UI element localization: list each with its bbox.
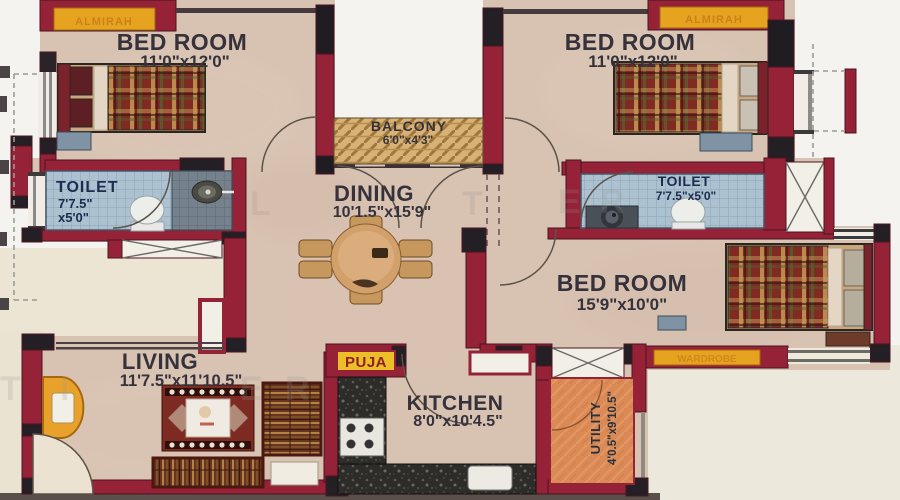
svg-text:11'0"x12'0": 11'0"x12'0" [140, 52, 229, 71]
svg-text:E: E [240, 370, 271, 408]
svg-text:11'0"x12'0": 11'0"x12'0" [588, 52, 677, 71]
svg-text:DINING: DINING [334, 181, 414, 206]
svg-text:R: R [285, 370, 318, 408]
svg-text:15'9"x10'0": 15'9"x10'0" [577, 295, 667, 314]
svg-text:TOILET: TOILET [56, 179, 119, 196]
svg-text:T: T [0, 370, 29, 408]
svg-text:PUJA: PUJA [345, 354, 387, 371]
svg-text:BALCONY: BALCONY [371, 118, 447, 134]
svg-text:7'7.5"x5'0": 7'7.5"x5'0" [656, 189, 716, 203]
svg-text:L: L [250, 185, 279, 223]
svg-text:BED ROOM: BED ROOM [557, 270, 688, 296]
svg-text:10'1.5"x15'9": 10'1.5"x15'9" [333, 204, 431, 221]
svg-text:8'0"x10'4.5": 8'0"x10'4.5" [413, 413, 503, 430]
svg-text:11'7.5"x11'10.5": 11'7.5"x11'10.5" [120, 372, 243, 390]
svg-text:R: R [600, 183, 633, 221]
svg-text:4'0.5"x9'10.5": 4'0.5"x9'10.5" [607, 391, 619, 465]
svg-text:6'0"x4'3": 6'0"x4'3" [383, 133, 433, 147]
svg-text:I: I [60, 370, 77, 408]
svg-text:ALMIRAH: ALMIRAH [75, 16, 133, 28]
svg-text:E: E [558, 183, 589, 221]
svg-text:KITCHEN: KITCHEN [407, 392, 504, 415]
svg-text:TOILET: TOILET [658, 173, 711, 189]
svg-text:WARDROBE: WARDROBE [677, 354, 737, 365]
svg-text:LIVING: LIVING [122, 349, 198, 374]
svg-text:UTILITY: UTILITY [588, 402, 603, 455]
svg-text:x5'0": x5'0" [58, 210, 89, 225]
svg-text:ALMIRAH: ALMIRAH [685, 14, 743, 26]
svg-text:T: T [462, 185, 491, 223]
svg-text:7'7.5": 7'7.5" [58, 196, 93, 211]
